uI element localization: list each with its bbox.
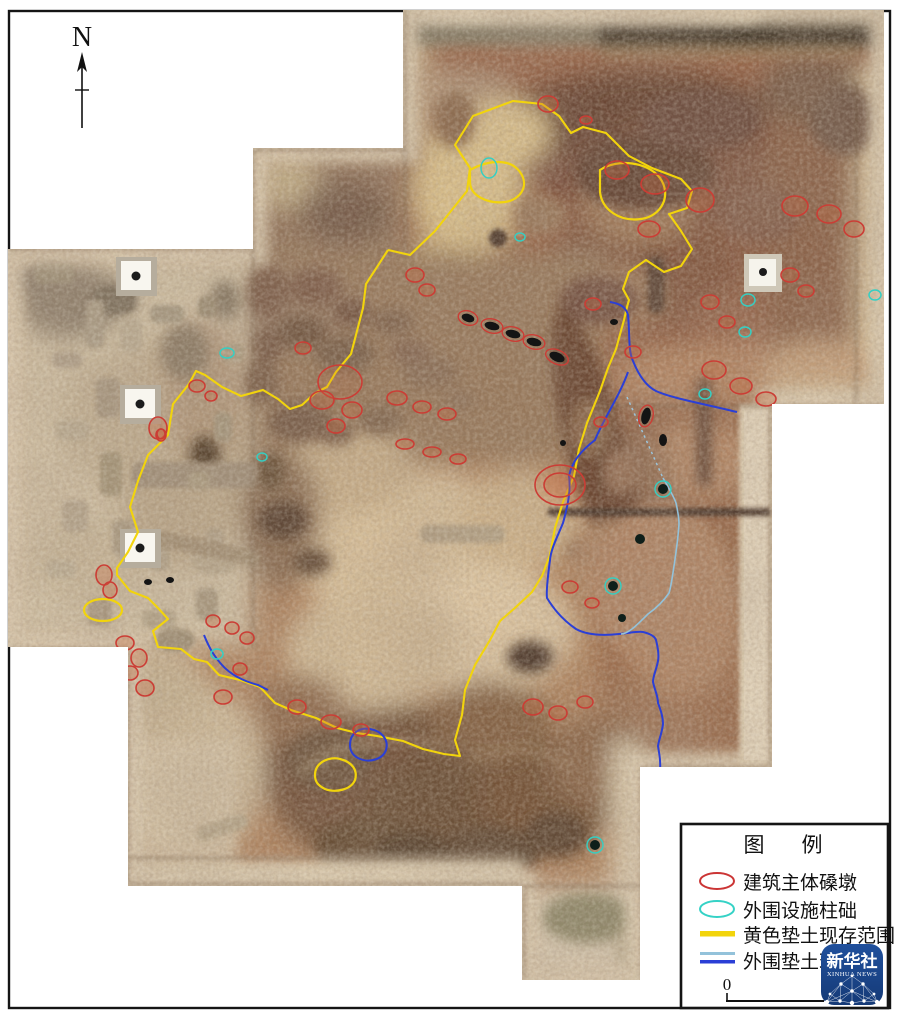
svg-text:黄色垫土现存范围: 黄色垫土现存范围 [743, 925, 895, 947]
svg-text:0: 0 [723, 975, 732, 994]
svg-text:建筑主体磉墩: 建筑主体磉墩 [743, 872, 857, 894]
svg-text:例: 例 [802, 833, 823, 857]
svg-text:图: 图 [744, 833, 765, 857]
svg-text:外围设施柱础: 外围设施柱础 [743, 900, 857, 922]
svg-text:新华社: 新华社 [827, 951, 878, 971]
svg-text:N: N [72, 22, 92, 53]
